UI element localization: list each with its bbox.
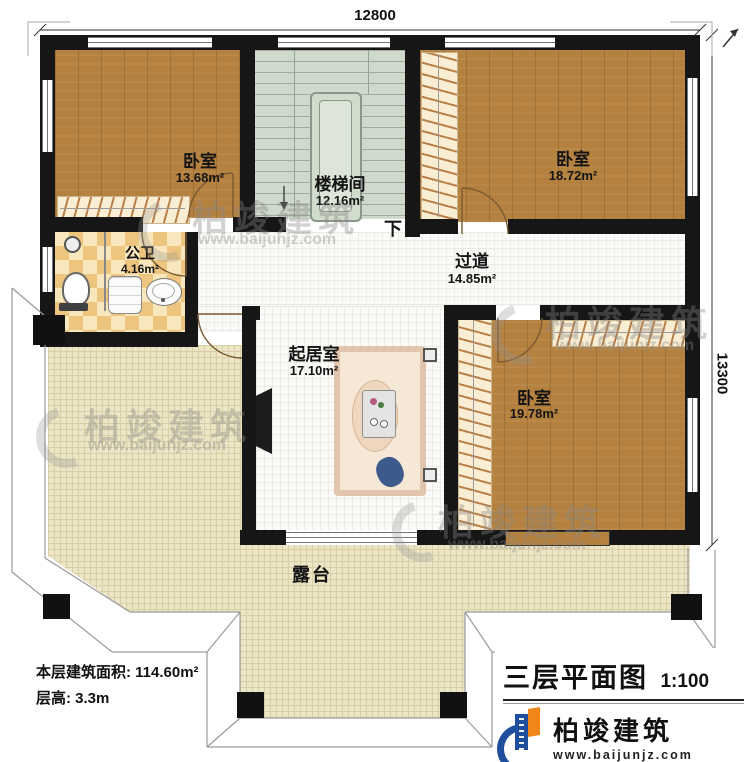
title-block: 三层平面图 1:100 柏竣建筑 www.baijunjz.com [495, 648, 750, 762]
stair-down-label: 下 [380, 220, 406, 239]
watermark-site: www.baijunjz.com [556, 337, 694, 355]
room-area-bedroom-nw: 13.68m² [150, 171, 250, 185]
column [671, 594, 702, 620]
watermark-site: www.baijunjz.com [448, 536, 586, 554]
brand-website: www.baijunjz.com [553, 748, 693, 762]
floor-height-note: 层高: 3.3m [36, 686, 199, 712]
column [43, 594, 70, 619]
plan-scale: 1:100 [660, 671, 709, 692]
room-area-corridor: 14.85m² [430, 272, 514, 286]
floor-plan: 卧室 13.68m² 楼梯间 12.16m² 下 卧室 18.72m² 公卫 4… [0, 0, 750, 762]
dimension-lines [28, 22, 738, 551]
watermark-site: www.baijunjz.com [88, 437, 226, 455]
room-area-bedroom-ne: 18.72m² [523, 169, 623, 183]
dimension-top: 12800 [330, 7, 420, 24]
room-area-bedroom-se: 19.78m² [488, 407, 580, 421]
room-label-living: 起居室 [264, 346, 364, 364]
room-label-corridor: 过道 [432, 253, 512, 271]
plan-title: 三层平面图 [503, 663, 648, 693]
floor-area-note: 本层建筑面积: 114.60m² [36, 660, 199, 686]
room-area-living: 17.10m² [272, 364, 356, 378]
plan-notes: 本层建筑面积: 114.60m² 层高: 3.3m [36, 660, 199, 711]
room-label-terrace: 露台 [276, 566, 348, 585]
room-label-bedroom-ne: 卧室 [528, 151, 618, 169]
room-area-bathroom: 4.16m² [106, 263, 174, 276]
north-arrowhead [730, 29, 738, 37]
brand-name: 柏竣建筑 [553, 711, 693, 748]
watermark-site: www.baijunjz.com [198, 231, 336, 249]
dimension-right: 13300 [714, 344, 731, 404]
plan-title-row: 三层平面图 1:100 [495, 648, 750, 695]
column [440, 692, 467, 718]
title-underline [503, 699, 744, 704]
room-label-bedroom-nw: 卧室 [155, 153, 245, 171]
column [33, 315, 65, 345]
column [237, 692, 264, 718]
brand-logo-icon [495, 708, 547, 762]
